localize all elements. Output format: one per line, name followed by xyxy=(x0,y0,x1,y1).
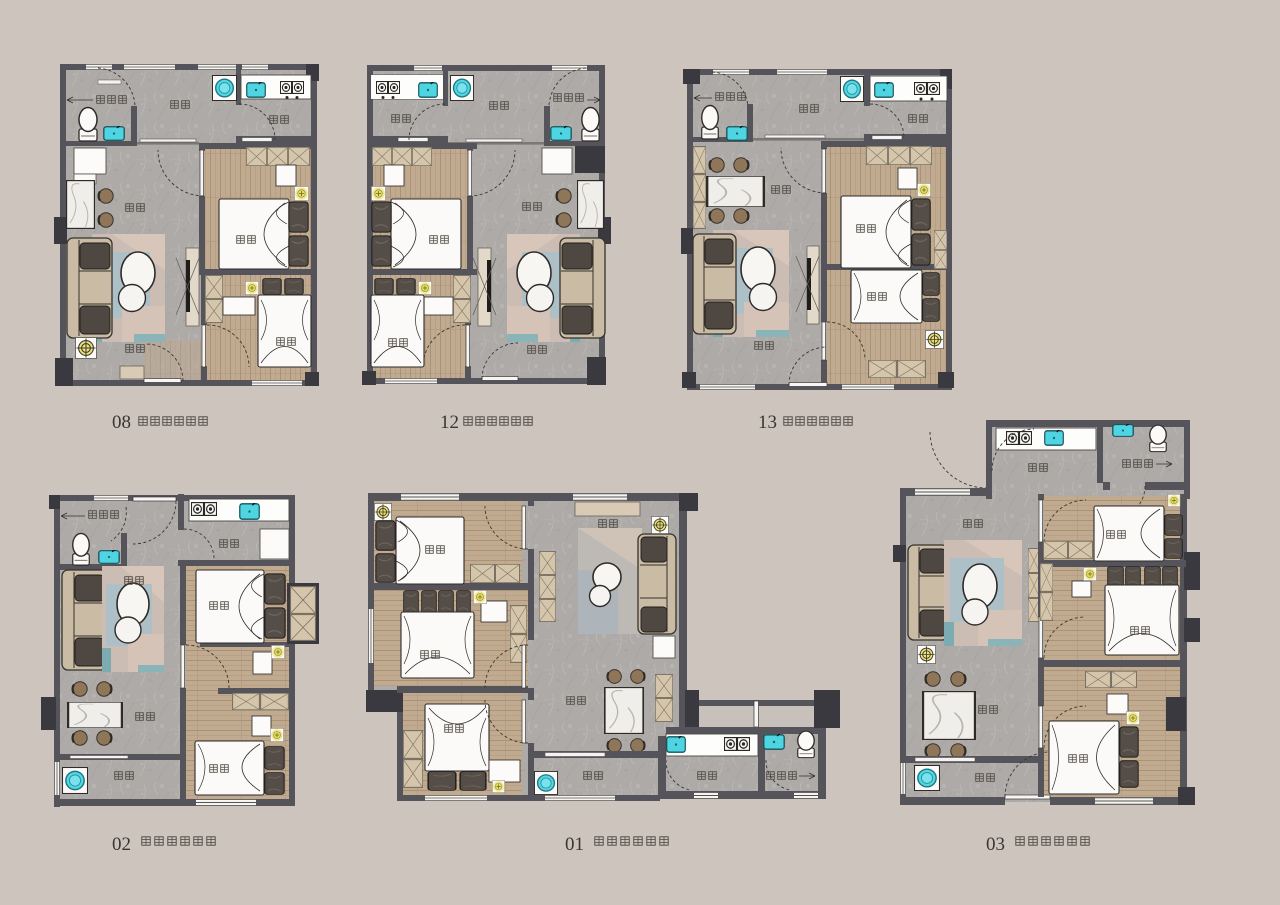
svg-text:13: 13 xyxy=(758,412,777,433)
svg-text:03: 03 xyxy=(986,834,1005,855)
svg-text:08: 08 xyxy=(112,412,131,433)
svg-text:12: 12 xyxy=(440,412,459,433)
svg-text:02: 02 xyxy=(112,834,131,855)
svg-text:01: 01 xyxy=(565,834,584,855)
